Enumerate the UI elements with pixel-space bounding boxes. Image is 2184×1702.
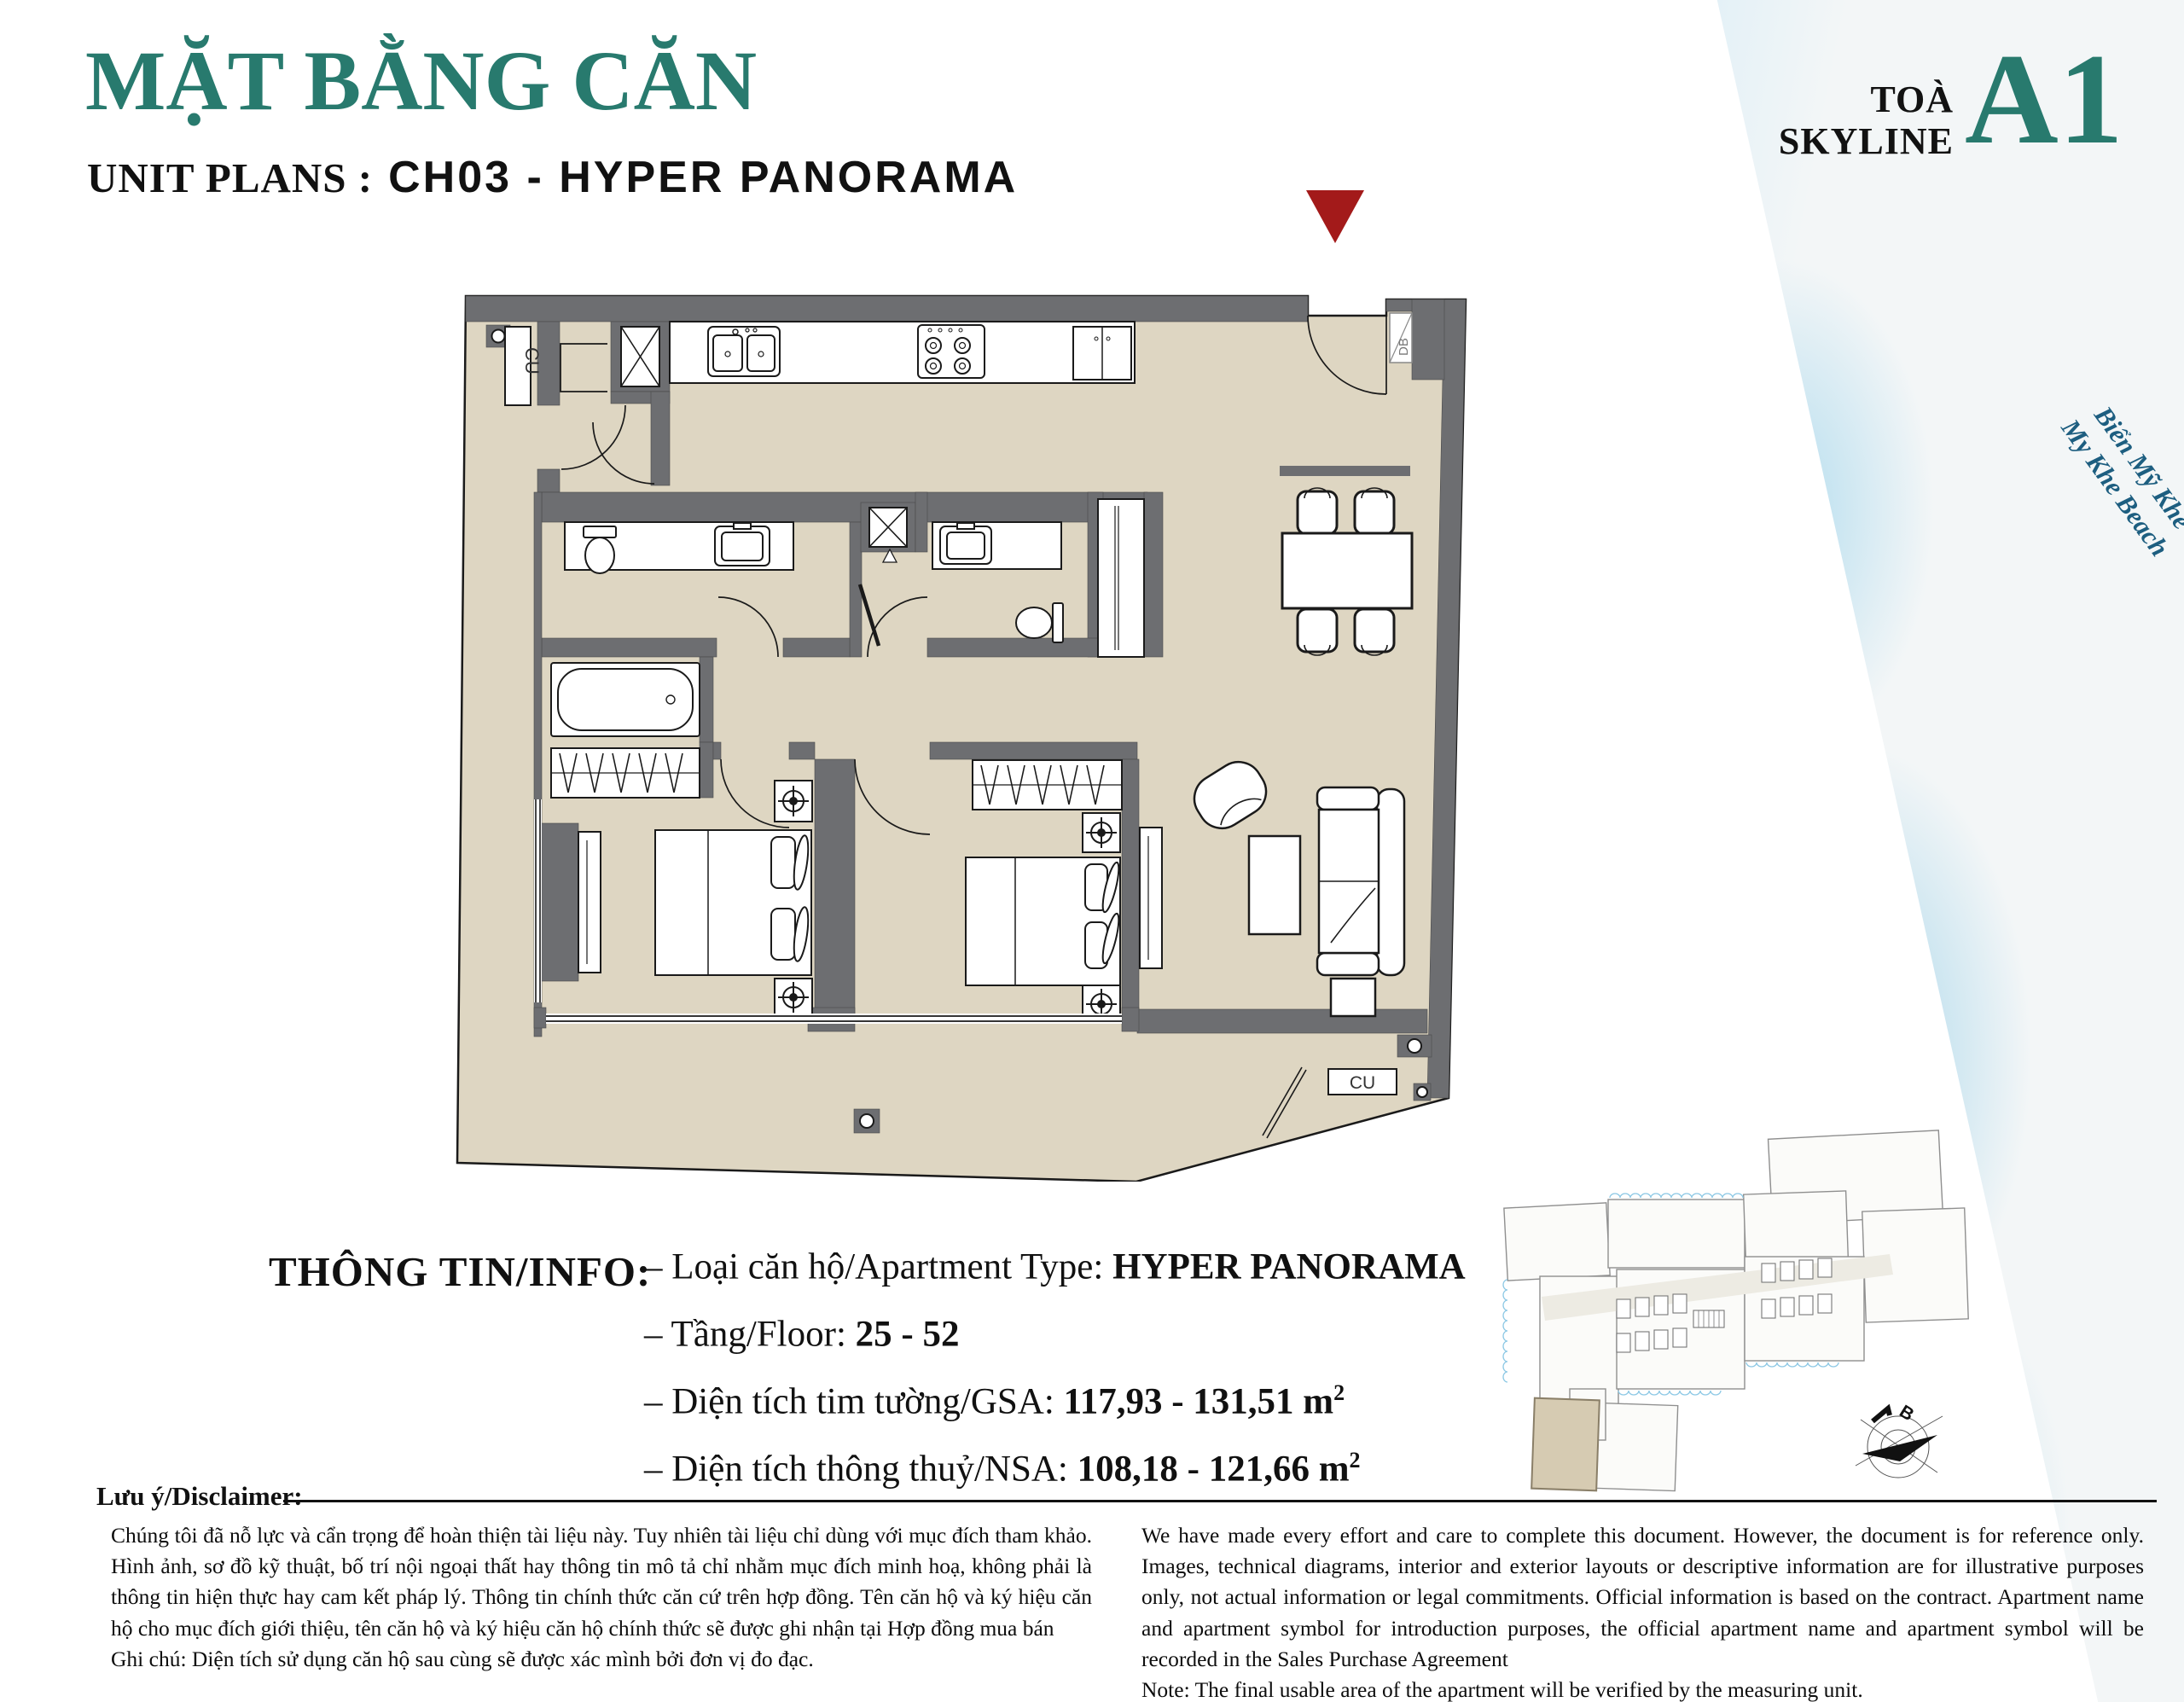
unit-plans-label: UNIT PLANS : — [87, 154, 373, 202]
floor-plan: CU CU DB — [452, 175, 1476, 1182]
coffee-table — [1249, 836, 1300, 934]
key-plan-highlighted-unit — [1531, 1398, 1600, 1491]
tower-code: A1 — [1965, 34, 2123, 164]
wardrobe-icon-bath1 — [551, 748, 700, 798]
entrance-marker-triangle — [1306, 190, 1364, 243]
disclaimer-vi-note: Ghi chú: Diện tích sử dụng căn hộ sau cù… — [111, 1644, 1092, 1675]
info-row-nsa: – Diện tích thông thuỷ/NSA: 108,18 - 121… — [644, 1448, 1466, 1515]
wall-console — [1280, 466, 1410, 476]
bed-bedroom2 — [966, 857, 1122, 985]
key-plan: B — [1489, 1124, 2001, 1534]
cu-bottom-label: CU — [1350, 1073, 1375, 1093]
tower-label: TOÀ SKYLINE — [1757, 78, 1954, 163]
info-row-gsa: – Diện tích tim tường/GSA: 117,93 - 131,… — [644, 1380, 1466, 1448]
sink-icon-bath2 — [940, 523, 991, 564]
dining-chair — [1355, 609, 1394, 652]
closet-shelf — [1098, 499, 1144, 657]
key-plan-wing — [1744, 1191, 1849, 1261]
page-title: MẶT BẰNG CĂN — [85, 36, 757, 125]
kitchen-sink-icon — [708, 327, 780, 376]
tv-panel-living — [1140, 828, 1162, 968]
compass-icon: B — [1856, 1402, 1943, 1478]
tv-panel-bedroom1 — [578, 832, 601, 973]
fridge-icon — [1073, 327, 1131, 380]
info-row-apartment-type: – Loại căn hộ/Apartment Type: HYPER PANO… — [644, 1246, 1466, 1313]
toilet-icon-bath1 — [584, 526, 616, 573]
tower-label-line1: TOÀ — [1757, 78, 1954, 120]
db-label: DB — [1397, 338, 1411, 356]
disclaimer-en-note: Note: The final usable area of the apart… — [1141, 1675, 2144, 1702]
key-plan-wing — [1596, 1403, 1677, 1490]
dining-chair — [1298, 609, 1337, 652]
stove-icon — [918, 325, 985, 378]
kitchen-counter — [670, 322, 1135, 383]
unit-plan-sheet: MẶT BẰNG CĂN UNIT PLANS : CH03 - HYPER P… — [0, 0, 2184, 1702]
info-row-floor: – Tầng/Floor: 25 - 52 — [644, 1313, 1466, 1380]
wardrobe-icon-bedroom2 — [973, 760, 1122, 810]
sofa-icon — [1317, 787, 1404, 975]
cu-top-label: CU — [521, 347, 543, 375]
sink-icon-bath1 — [715, 523, 770, 566]
dining-table — [1282, 533, 1412, 608]
info-rows: – Loại căn hộ/Apartment Type: HYPER PANO… — [644, 1246, 1466, 1515]
tower-label-line2: SKYLINE — [1757, 120, 1954, 162]
dining-chair — [1355, 491, 1394, 534]
disclaimer-en-text: We have made every effort and care to co… — [1141, 1520, 2144, 1675]
bed-bedroom1 — [655, 830, 811, 975]
compass-north-label: B — [1896, 1402, 1917, 1426]
disclaimer-english: We have made every effort and care to co… — [1141, 1520, 2144, 1702]
disclaimer-vietnamese: Chúng tôi đã nỗ lực và cẩn trọng để hoàn… — [111, 1520, 1092, 1675]
floor-slab — [457, 296, 1466, 1182]
side-table — [1331, 979, 1375, 1016]
disclaimer-rule — [283, 1500, 2157, 1502]
bathtub-icon — [551, 663, 700, 736]
key-plan-wing — [1504, 1203, 1610, 1281]
disclaimer-heading: Lưu ý/Disclaimer: — [96, 1481, 303, 1512]
dining-chair — [1298, 491, 1337, 534]
key-plan-wing — [1608, 1200, 1745, 1268]
info-heading: THÔNG TIN/INFO: — [269, 1247, 651, 1296]
disclaimer-vi-text: Chúng tôi đã nỗ lực và cẩn trọng để hoàn… — [111, 1520, 1092, 1644]
